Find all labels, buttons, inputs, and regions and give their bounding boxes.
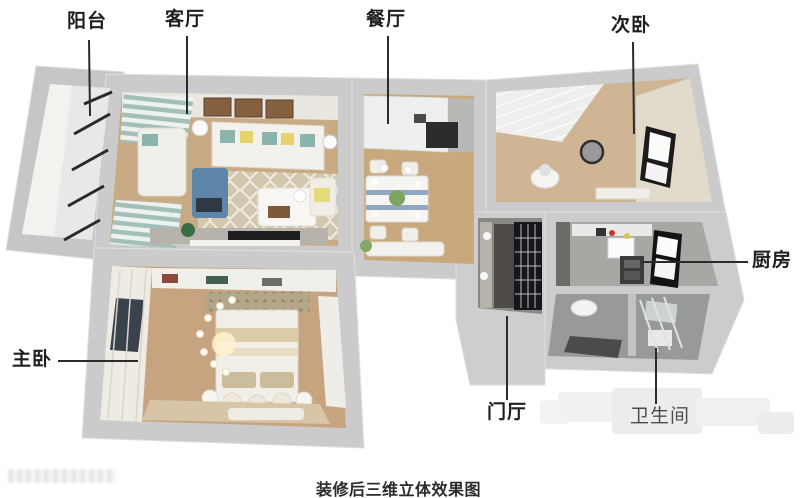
pendant-light — [380, 164, 388, 172]
dresser — [596, 188, 650, 199]
plant — [360, 240, 372, 252]
floor-plan-figure: 阳台 客厅 餐厅 次卧 厨房 主卧 门厅 卫生间 装修后三维立体效果图 — [0, 0, 804, 498]
second-bedroom-label: 次卧 — [611, 16, 651, 37]
wardrobe — [152, 268, 336, 292]
bench — [366, 242, 444, 256]
figure-caption: 装修后三维立体效果图 — [316, 476, 481, 498]
tv — [228, 231, 300, 240]
watermark — [8, 469, 116, 483]
downlight — [483, 232, 491, 240]
plant — [181, 223, 195, 237]
pillow — [260, 372, 294, 388]
picture-frames — [204, 98, 293, 118]
living-room-label: 客厅 — [165, 10, 205, 31]
bathtub — [571, 300, 597, 316]
divider-wall — [628, 294, 636, 356]
bathroom-label: 卫生间 — [630, 407, 690, 428]
tv-console — [190, 240, 300, 246]
balcony-leader-line — [89, 40, 90, 116]
balcony-label: 阳台 — [67, 12, 107, 33]
entrance-hall-room — [478, 218, 542, 314]
centerpiece-plant — [389, 190, 405, 206]
side-table — [323, 135, 337, 149]
fridge — [608, 238, 634, 258]
downlight — [480, 272, 488, 280]
living-room — [110, 92, 338, 248]
master-bedroom-room — [100, 266, 346, 428]
kitchen-room — [556, 222, 718, 288]
entrance-hall-label: 门厅 — [487, 403, 527, 424]
second-bedroom-room — [496, 78, 712, 202]
dining-room — [360, 94, 474, 264]
bench — [228, 408, 304, 420]
second-bedroom-leader-line — [633, 42, 634, 134]
master-bedroom-label: 主卧 — [12, 350, 52, 371]
chandelier-glow — [212, 332, 236, 356]
side-table — [192, 120, 208, 136]
bathroom-room — [548, 294, 710, 360]
kitchen-door — [556, 222, 570, 286]
wall-clock — [581, 141, 603, 163]
cooktop — [426, 122, 458, 148]
dining-room-label: 餐厅 — [366, 10, 406, 31]
pendant-light — [404, 166, 412, 174]
kitchen-label: 厨房 — [752, 251, 792, 272]
doorway — [494, 224, 514, 308]
